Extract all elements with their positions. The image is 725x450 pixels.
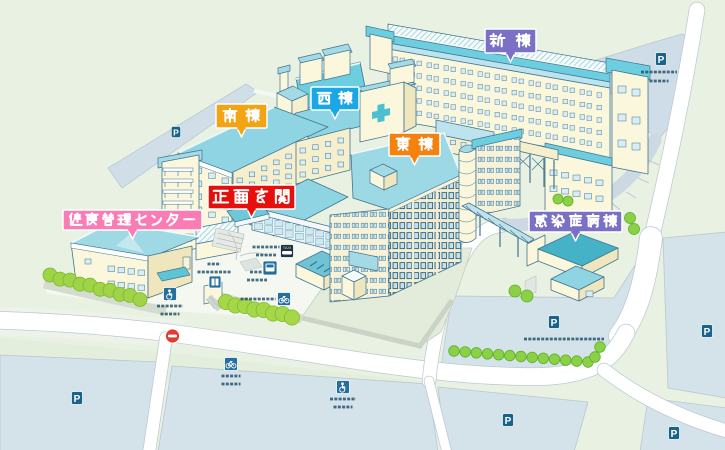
svg-text:P: P — [505, 416, 512, 427]
svg-text:P: P — [551, 318, 558, 329]
svg-text:TAXI: TAXI — [283, 245, 292, 250]
svg-text:P: P — [74, 394, 81, 405]
svg-text:P: P — [658, 55, 665, 66]
svg-text:P: P — [704, 327, 711, 338]
svg-text:P: P — [173, 128, 179, 138]
svg-text:P: P — [671, 429, 678, 440]
